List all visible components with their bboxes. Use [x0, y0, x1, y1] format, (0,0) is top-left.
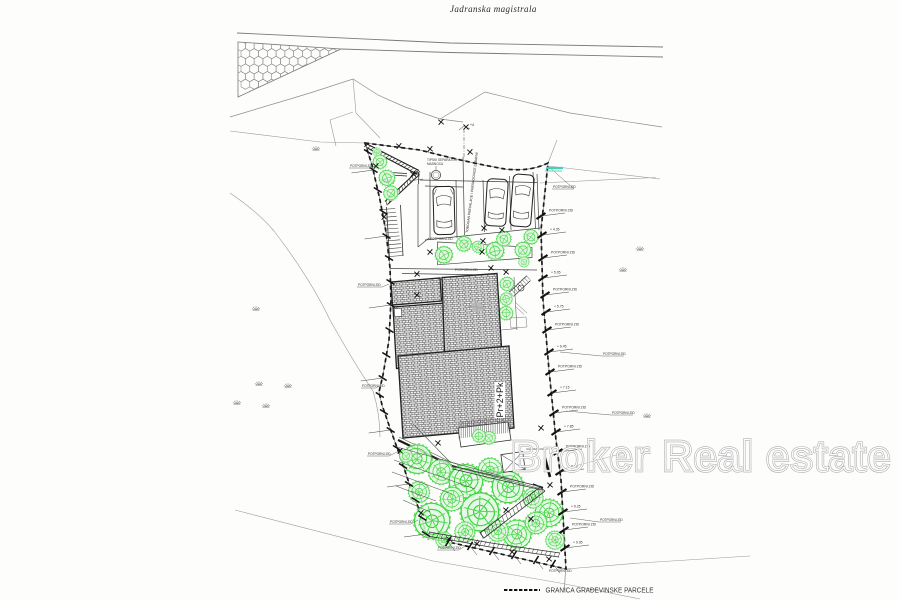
svg-text:POTPORNI ZID: POTPORNI ZID [572, 523, 597, 527]
svg-text:POTPORNI ZID: POTPORNI ZID [438, 546, 461, 550]
svg-text:POTPORNI ZID: POTPORNI ZID [455, 268, 478, 272]
svg-text:GRANICA GRAĐEVINSKE PARCELE: GRANICA GRAĐEVINSKE PARCELE [546, 588, 654, 595]
svg-text:Pr+2+Pk: Pr+2+Pk [495, 382, 505, 418]
svg-text:POTPORNI ZID: POTPORNI ZID [570, 485, 595, 489]
svg-text:POTPORNI ZID: POTPORNI ZID [612, 411, 635, 415]
svg-text:+ 9.25: + 9.25 [571, 505, 581, 509]
svg-text:+ 7.85: + 7.85 [564, 425, 574, 429]
svg-text:POTPORNI ZID: POTPORNI ZID [558, 365, 583, 369]
svg-text:POTPORNI ZID: POTPORNI ZID [600, 518, 623, 522]
svg-text:MASNOCA: MASNOCA [427, 162, 444, 166]
svg-text:Jadranska magistrala: Jadranska magistrala [450, 4, 537, 14]
svg-text:POTPORNI ZID: POTPORNI ZID [555, 323, 580, 327]
svg-text:POTPORNI ZID: POTPORNI ZID [553, 185, 576, 189]
svg-text:+ 7.15: + 7.15 [560, 386, 570, 390]
svg-text:POTPORNI ZID: POTPORNI ZID [553, 288, 578, 292]
svg-text:POTPORNI ZID: POTPORNI ZID [562, 406, 587, 410]
svg-text:POTPORNI ZID: POTPORNI ZID [430, 237, 453, 241]
svg-text:+ 6.45: + 6.45 [557, 345, 567, 349]
svg-text:POTPORNI ZID: POTPORNI ZID [549, 569, 572, 573]
svg-text:POTPORNI ZID: POTPORNI ZID [362, 384, 385, 388]
svg-text:+ 9.95: + 9.95 [573, 541, 583, 545]
svg-text:POTPORNI ZID: POTPORNI ZID [350, 164, 373, 168]
svg-text:+ 4.35: + 4.35 [550, 228, 560, 232]
svg-text:Broker Real estate: Broker Real estate [511, 432, 891, 481]
svg-text:POTPORNI ZID: POTPORNI ZID [390, 520, 413, 524]
svg-text:+4: +4 [470, 123, 474, 127]
svg-text:+ 5.05: + 5.05 [551, 271, 561, 275]
svg-text:POTPORNI ZID: POTPORNI ZID [603, 352, 626, 356]
svg-text:POTPORNI ZID: POTPORNI ZID [368, 452, 391, 456]
svg-text:POTPORNI ZID: POTPORNI ZID [358, 283, 381, 287]
svg-text:POTPORNI ZID: POTPORNI ZID [549, 209, 574, 213]
svg-text:+ 5.75: + 5.75 [554, 305, 564, 309]
svg-text:POTPORNI ZID: POTPORNI ZID [551, 251, 576, 255]
